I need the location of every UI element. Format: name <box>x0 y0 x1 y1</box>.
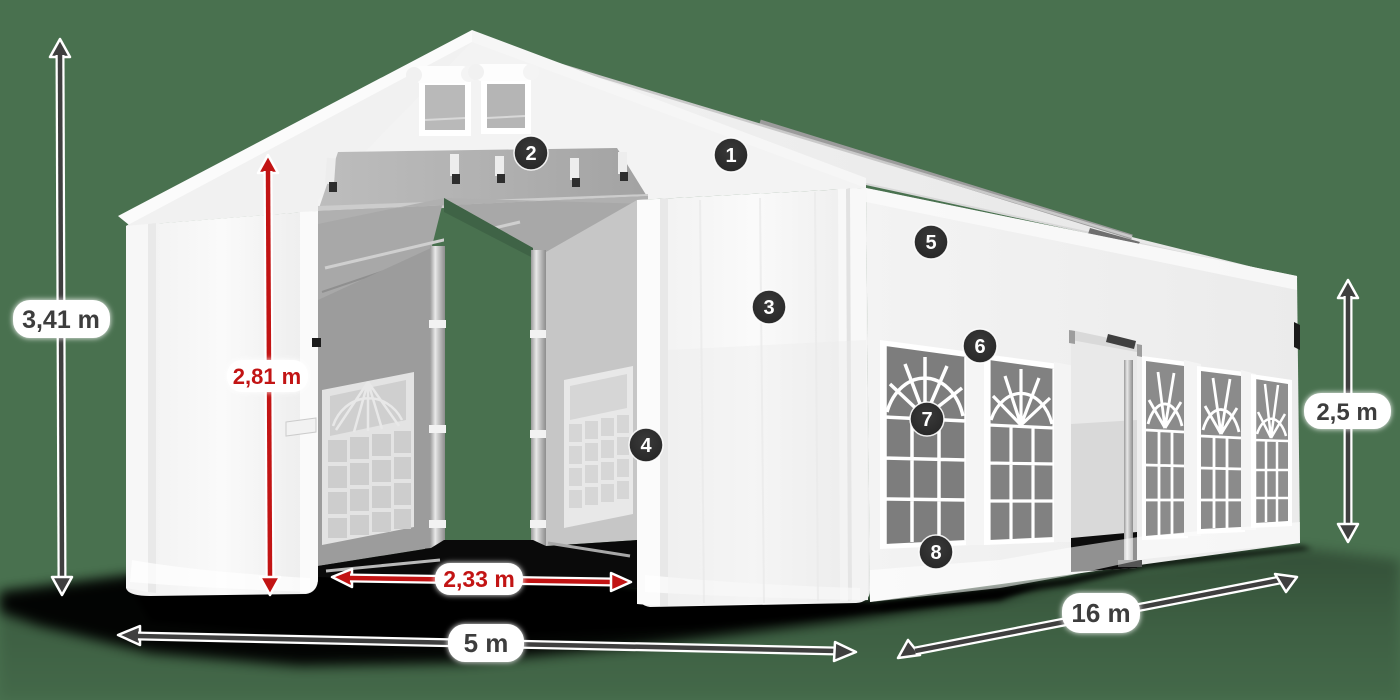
svg-text:2: 2 <box>525 143 536 165</box>
svg-text:8: 8 <box>930 542 941 564</box>
svg-text:5 m: 5 m <box>464 628 509 658</box>
svg-text:2,5 m: 2,5 m <box>1316 399 1377 426</box>
svg-text:7: 7 <box>921 409 932 431</box>
svg-text:3,41 m: 3,41 m <box>22 306 100 334</box>
svg-text:5: 5 <box>925 232 936 254</box>
svg-text:16 m: 16 m <box>1071 598 1130 628</box>
svg-text:4: 4 <box>640 435 652 457</box>
svg-text:3: 3 <box>763 297 774 319</box>
svg-text:6: 6 <box>974 336 985 358</box>
svg-text:1: 1 <box>725 145 736 167</box>
svg-text:2,33 m: 2,33 m <box>443 566 515 592</box>
svg-text:2,81 m: 2,81 m <box>233 364 302 389</box>
